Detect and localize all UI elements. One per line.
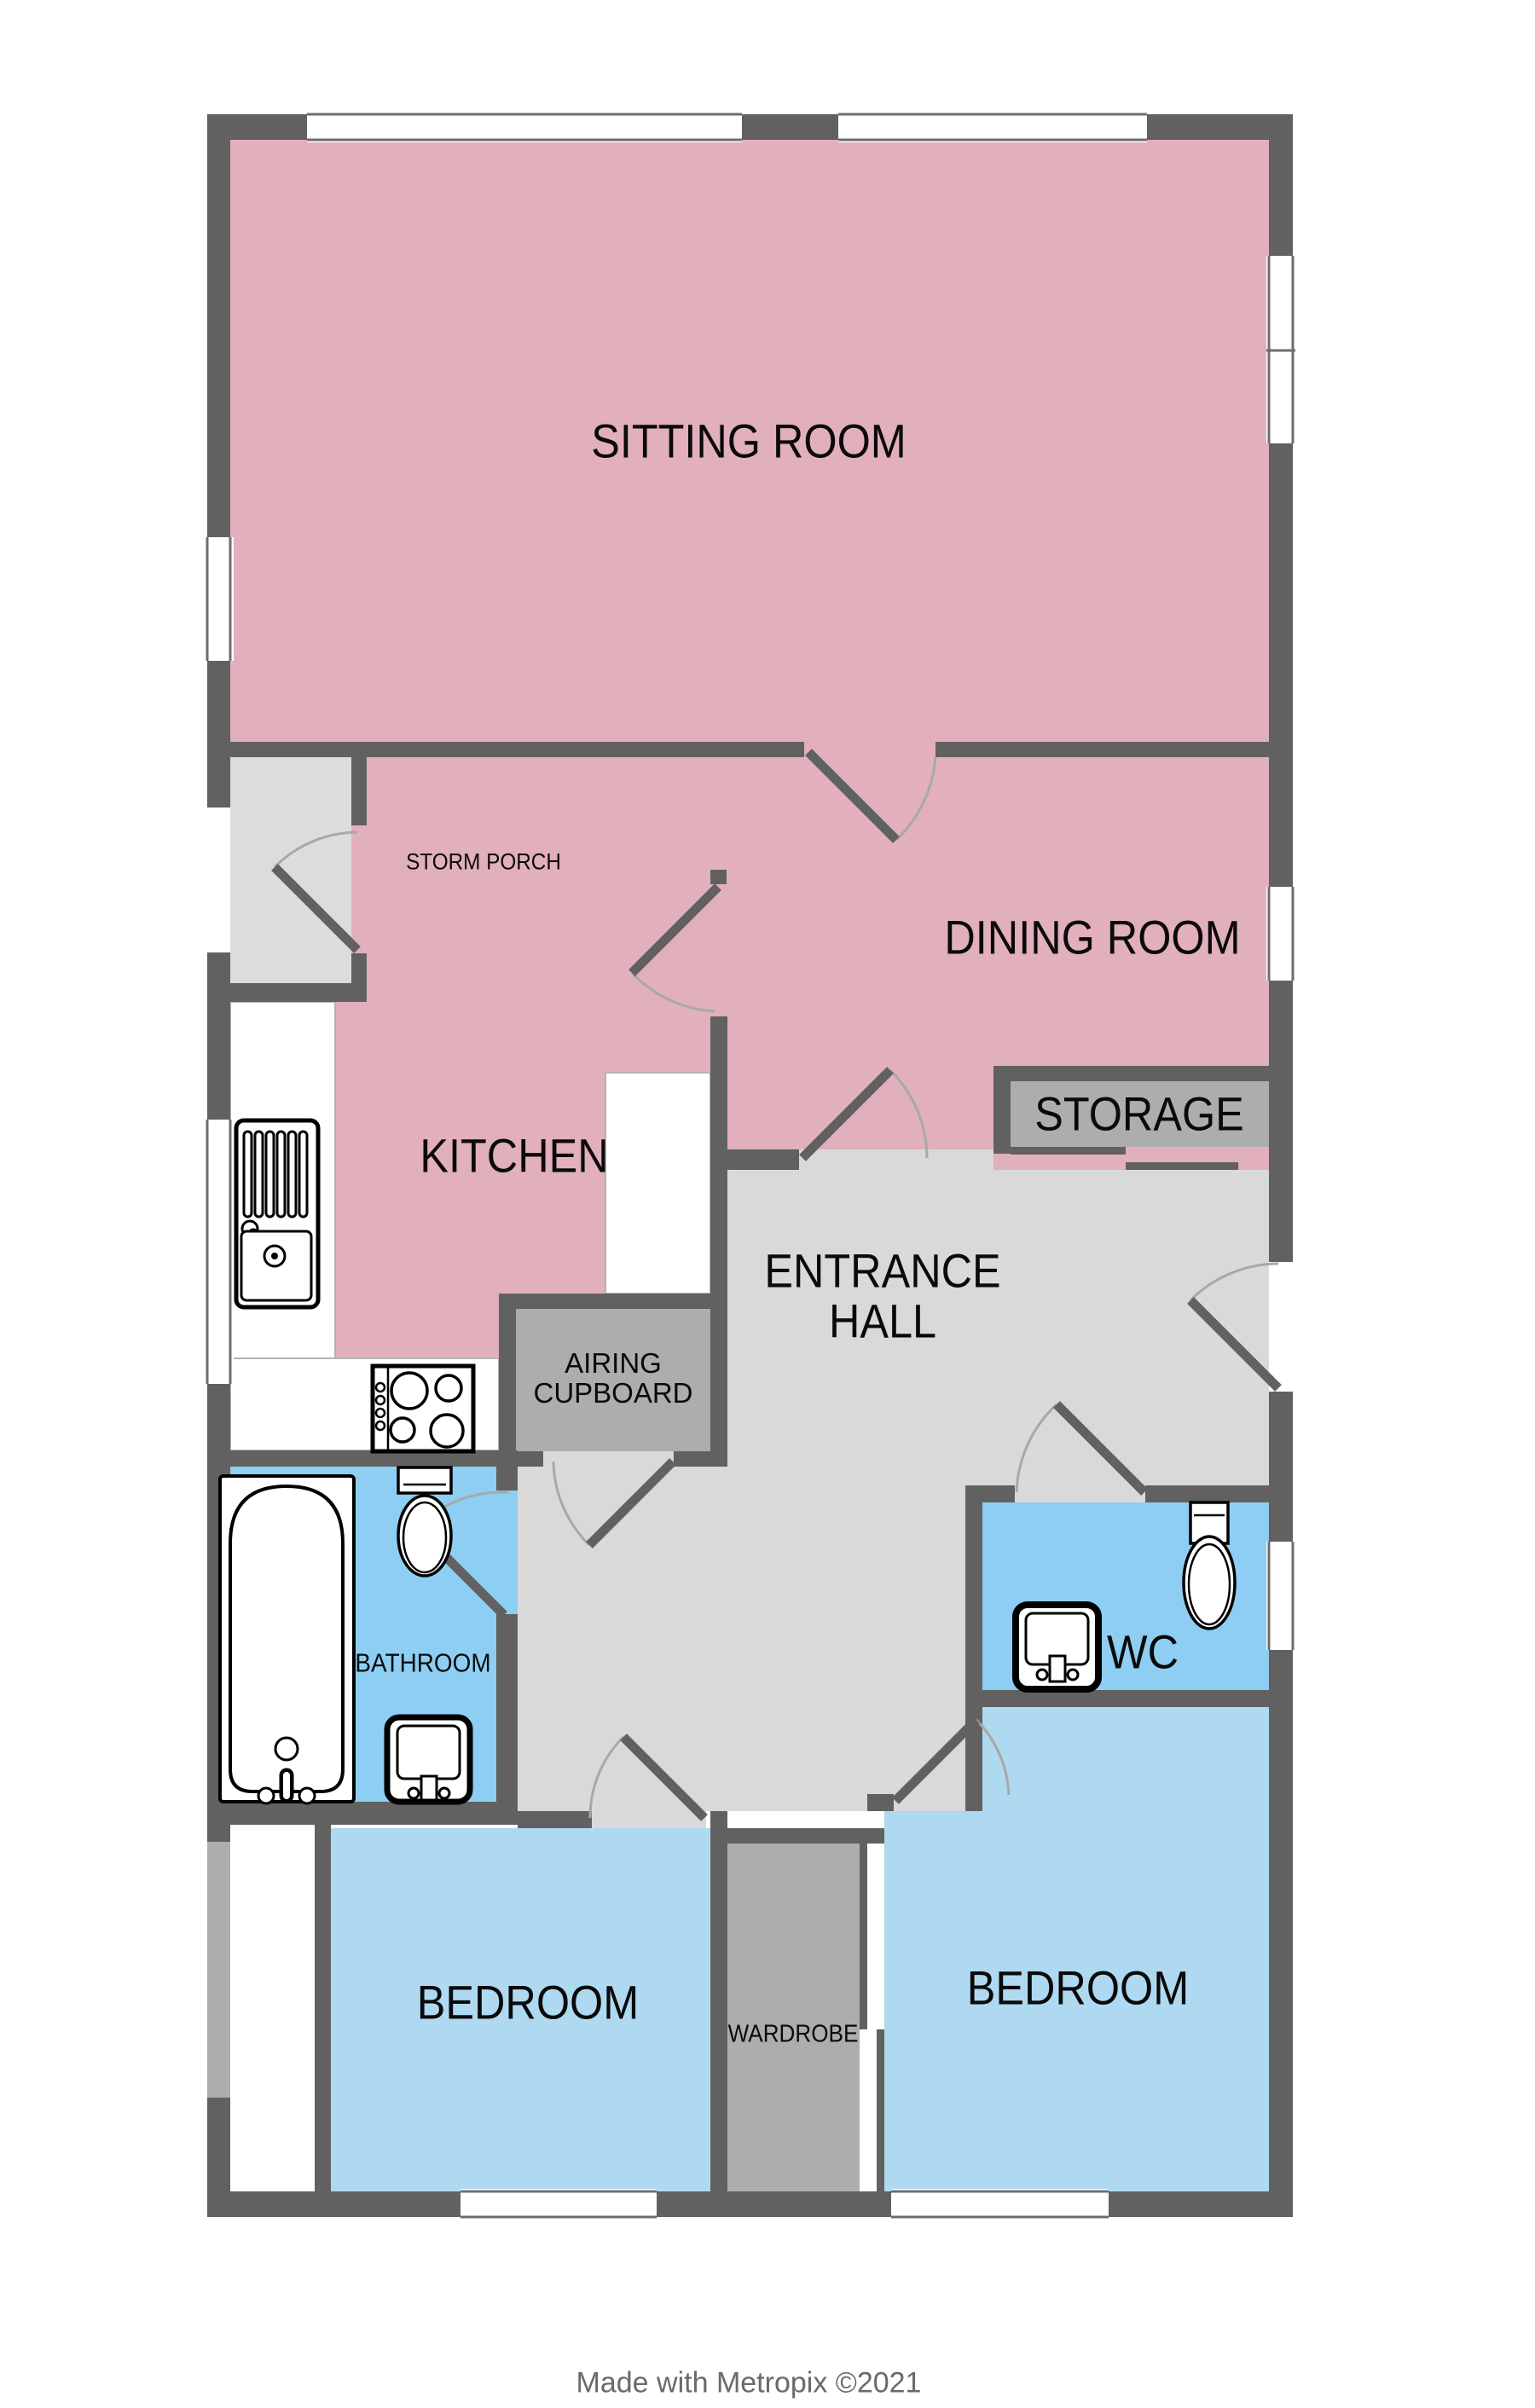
- label-sitting-room: SITTING ROOM: [591, 415, 907, 466]
- bathroom-door-threshold: [496, 1491, 518, 1614]
- kitchen-sink-icon: [236, 1120, 318, 1307]
- label-bathroom: BATHROOM: [355, 1650, 490, 1678]
- bedroom-left-threshold: [592, 1811, 706, 1828]
- label-wardrobe: WARDROBE: [728, 2022, 859, 2048]
- room-bedroom-right: [982, 1707, 1269, 2191]
- window-right-dining: [1266, 887, 1295, 981]
- label-entrance-hall-line1: ENTRANCE: [764, 1246, 1000, 1296]
- window-bottom-left: [460, 2189, 657, 2220]
- window-left-sitting: [205, 537, 234, 661]
- label-storage: STORAGE: [1034, 1088, 1244, 1138]
- wc-door-threshold: [1015, 1485, 1145, 1502]
- wc-basin-icon: [1016, 1605, 1098, 1689]
- kitchen-counter-mid: [605, 1073, 710, 1294]
- room-sitting-dining-kitchen: [230, 140, 1269, 1170]
- label-bedroom-left: BEDROOM: [417, 1977, 639, 2027]
- bathroom-basin-icon: [387, 1717, 470, 1802]
- window-bottom-right: [891, 2189, 1109, 2220]
- floor-plan: SITTING ROOM STORM PORCH DINING ROOM KIT…: [0, 0, 1535, 2408]
- label-entrance-hall-line2: HALL: [764, 1296, 1000, 1346]
- void-bottom-left: [230, 1825, 315, 2191]
- room-entrance-hall-corridor: [518, 1467, 965, 1811]
- room-wardrobe: [727, 1844, 860, 2191]
- window-top-left: [307, 112, 742, 142]
- label-airing-cupboard-line2: CUPBOARD: [533, 1379, 692, 1409]
- front-door-opening: [1269, 1262, 1293, 1392]
- label-airing-cupboard-line1: AIRING: [533, 1349, 692, 1379]
- window-top-right: [838, 112, 1147, 142]
- label-dining-room: DINING ROOM: [944, 912, 1240, 962]
- hall-dining-opening: [799, 1149, 993, 1170]
- bathtub-icon: [220, 1476, 354, 1803]
- label-entrance-hall: ENTRANCE HALL: [764, 1246, 1000, 1347]
- window-right-sitting: [1266, 256, 1295, 443]
- credit-text: Made with Metropix ©2021: [576, 2367, 922, 2400]
- storm-porch-door-opening: [207, 807, 230, 952]
- label-storm-porch: STORM PORCH: [406, 850, 561, 875]
- airing-door-threshold: [543, 1451, 674, 1467]
- window-left-bottom: [207, 1842, 230, 2098]
- label-kitchen: KITCHEN: [420, 1130, 608, 1180]
- room-storm-porch: [230, 757, 351, 983]
- window-right-wc: [1266, 1542, 1295, 1650]
- label-bedroom-right: BEDROOM: [967, 1962, 1189, 2012]
- wc-toilet-icon: [1184, 1502, 1235, 1629]
- window-left-kitchen: [205, 1120, 234, 1384]
- label-airing-cupboard: AIRING CUPBOARD: [533, 1349, 692, 1409]
- bathroom-toilet-icon: [398, 1467, 451, 1576]
- hob-icon: [373, 1366, 473, 1451]
- label-wc: WC: [1107, 1626, 1179, 1676]
